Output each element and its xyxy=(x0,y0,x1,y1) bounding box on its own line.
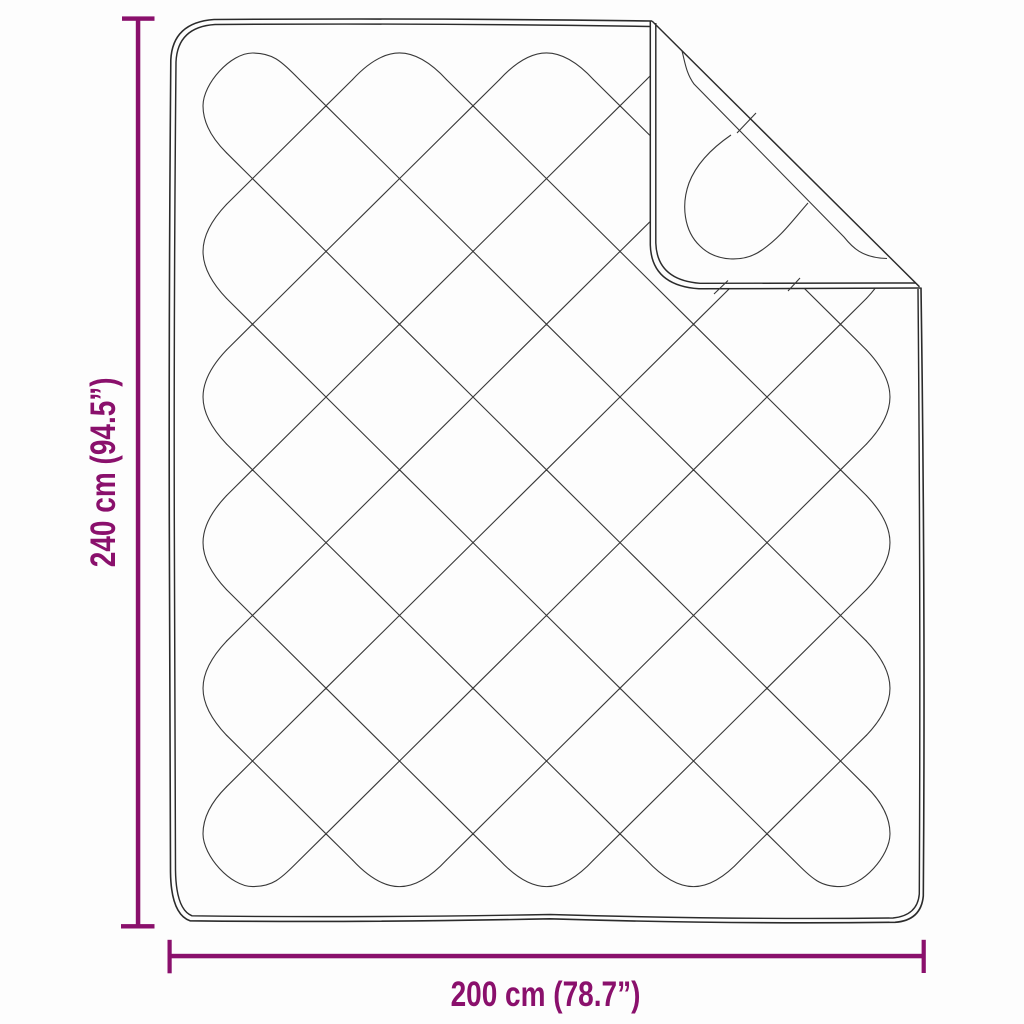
svg-text:200 cm (78.7”): 200 cm (78.7”) xyxy=(451,974,641,1014)
svg-text:240 cm (94.5”): 240 cm (94.5”) xyxy=(83,377,123,567)
